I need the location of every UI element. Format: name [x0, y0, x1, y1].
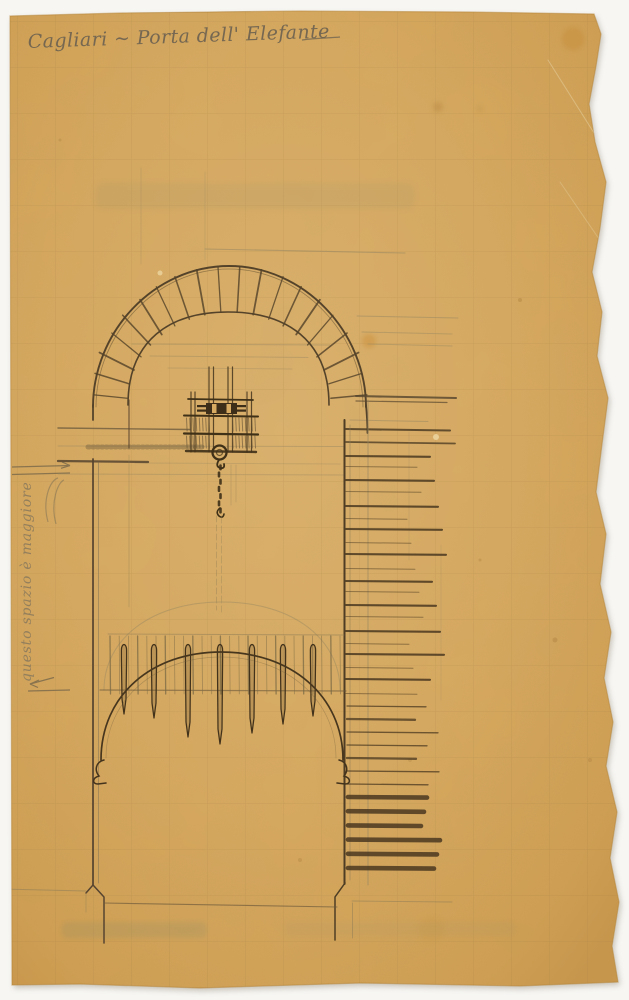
side-note-text: questo spazio è maggiore [19, 481, 35, 682]
scanned-drawing: Cagliari ~ Porta dell' Elefante questo s… [0, 0, 629, 1000]
chain-links [219, 466, 221, 513]
scan-canvas: Cagliari ~ Porta dell' Elefante questo s… [0, 0, 629, 1000]
paper-grain [0, 0, 629, 1000]
